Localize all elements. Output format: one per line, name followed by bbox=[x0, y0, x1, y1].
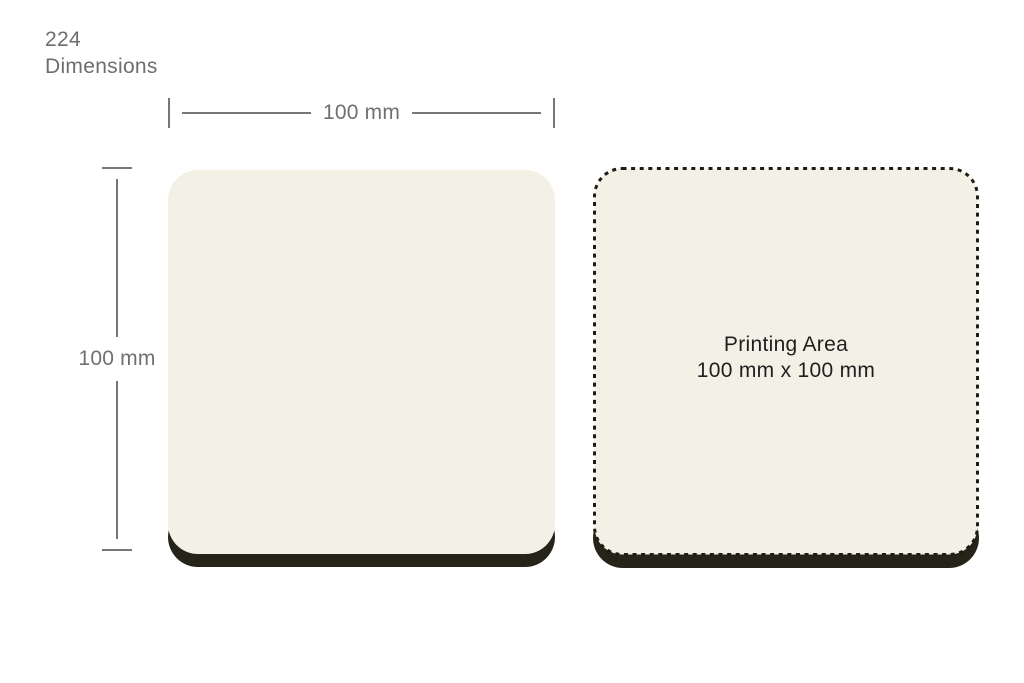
dimension-line-bottom bbox=[116, 381, 118, 539]
product-surface bbox=[168, 170, 555, 554]
dimension-line-top bbox=[116, 179, 118, 337]
dimension-line-left bbox=[182, 112, 311, 114]
width-dimension-callout: 100 mm bbox=[168, 98, 555, 128]
product-front-view bbox=[168, 170, 555, 567]
page-title: 224 Dimensions bbox=[45, 26, 158, 80]
dimensions-diagram: 224 Dimensions 100 mm 100 mm Printing Ar… bbox=[0, 0, 1024, 683]
height-dimension-callout: 100 mm bbox=[102, 167, 132, 551]
printing-area-label: Printing Area 100 mm x 100 mm bbox=[593, 332, 979, 384]
width-dimension-label: 100 mm bbox=[323, 101, 400, 125]
height-dimension-label: 100 mm bbox=[78, 347, 155, 371]
dimension-tick-left bbox=[168, 98, 170, 128]
printing-area-view: Printing Area 100 mm x 100 mm bbox=[593, 167, 979, 568]
dimension-tick-right bbox=[553, 98, 555, 128]
dimension-line-right bbox=[412, 112, 541, 114]
dimension-tick-bottom bbox=[102, 549, 132, 551]
printing-area-title: Printing Area bbox=[593, 332, 979, 358]
printing-area-size: 100 mm x 100 mm bbox=[593, 358, 979, 384]
product-code: 224 bbox=[45, 26, 158, 53]
section-label: Dimensions bbox=[45, 53, 158, 80]
dimension-tick-top bbox=[102, 167, 132, 169]
